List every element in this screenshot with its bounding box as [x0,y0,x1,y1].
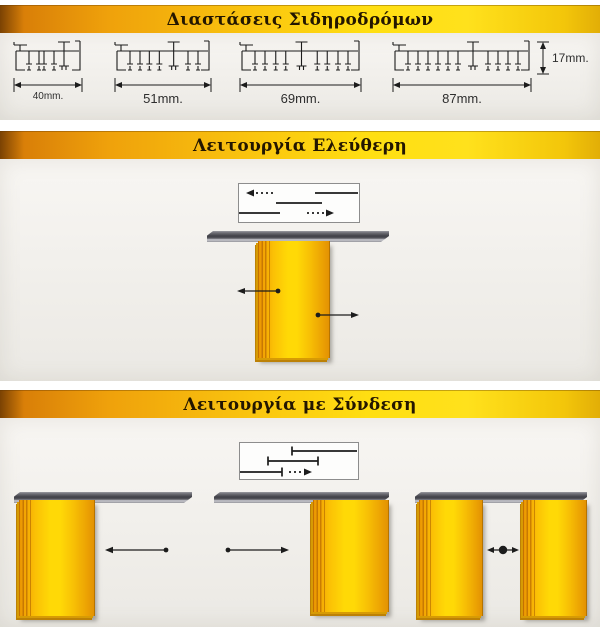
curtain-panel [523,500,587,616]
curtain-panel [313,500,389,612]
curtain-panel [258,241,330,358]
legend-free-motion-icon [239,184,358,221]
height-dimension-arrow-icon [536,40,550,76]
legend-connected-motion-icon [240,443,357,478]
motion-arrow-left-icon [234,285,284,297]
rail-profile-drawing [12,38,84,94]
rail-profile-69mm: 69mm. [238,38,363,106]
banner-connected-operation: Λειτουργία με Σύνδεση [0,390,600,419]
banner-rail-dimensions: Διαστάσεις Σιδηροδρόμων [0,5,600,34]
curtain-panel [419,500,483,616]
legend-connected-motion [239,442,359,480]
rail-profile-51mm: 51mm. [113,38,213,106]
banner-free-operation-title: Λειτουργία Ελεύθερη [193,136,407,156]
height-dimension-label: 17mm. [552,51,589,65]
banner-rail-dimensions-title: Διαστάσεις Σιδηροδρόμων [167,10,434,30]
banner-free-operation: Λειτουργία Ελεύθερη [0,131,600,160]
dimension-label: 40mm. [12,91,84,102]
rail-profile-40mm: 40mm. [12,38,84,102]
motion-arrow-right-icon [312,309,362,321]
rail-profile-drawing [391,38,533,94]
motion-arrow-both-icon [485,543,521,557]
curtain-panel [19,500,95,616]
banner-connected-operation-title: Λειτουργία με Σύνδεση [183,395,416,415]
height-dimension: 17mm. [536,40,589,76]
dimension-label: 69mm. [238,91,363,106]
rail-profile-drawing [113,38,213,94]
rail-profile-87mm: 87mm. [391,38,533,106]
legend-free-motion [238,183,360,223]
motion-arrow-right-icon [222,544,292,556]
rail-profile-drawing [238,38,363,94]
dimension-label: 87mm. [391,91,533,106]
motion-arrow-left-icon [102,544,172,556]
dimension-label: 51mm. [113,91,213,106]
